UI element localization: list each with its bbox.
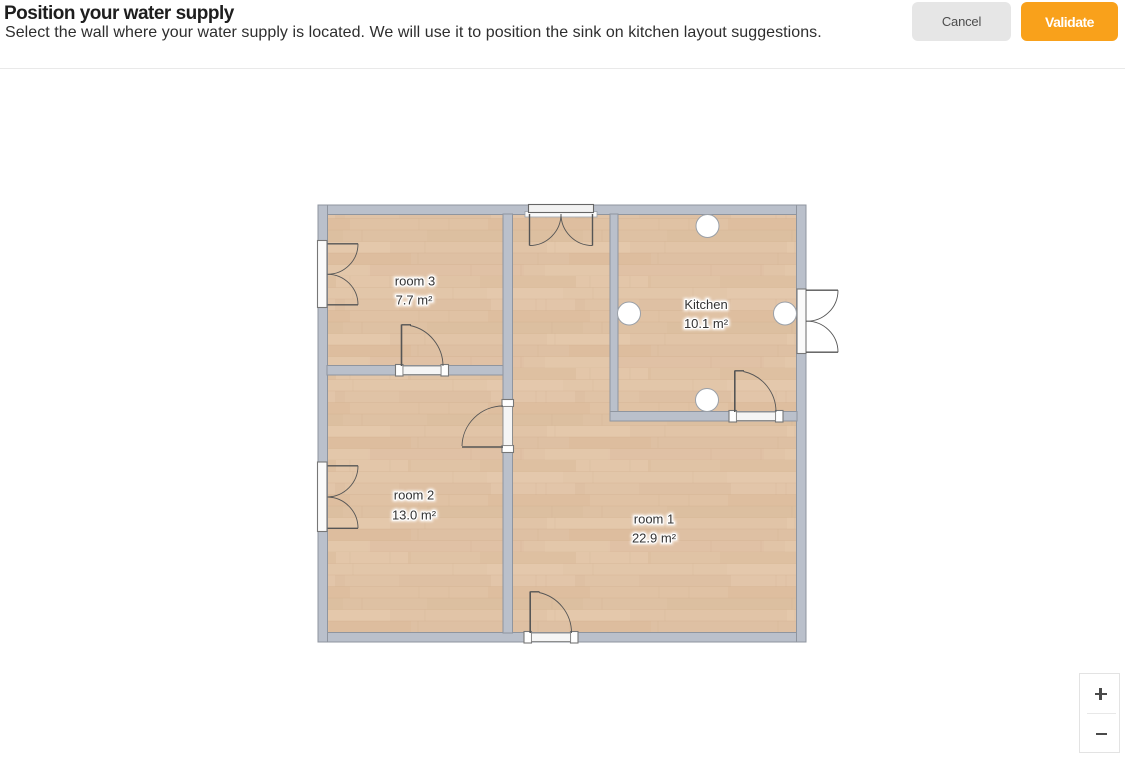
svg-text:room 1: room 1: [634, 512, 674, 527]
svg-text:13.0 m²: 13.0 m²: [392, 508, 437, 523]
svg-text:22.9 m²: 22.9 m²: [632, 531, 677, 546]
svg-text:7.7 m²: 7.7 m²: [396, 293, 434, 308]
svg-text:Kitchen: Kitchen: [684, 297, 727, 312]
svg-text:10.1 m²: 10.1 m²: [684, 316, 729, 331]
svg-text:room 3: room 3: [395, 274, 435, 289]
svg-text:room 2: room 2: [394, 488, 434, 503]
